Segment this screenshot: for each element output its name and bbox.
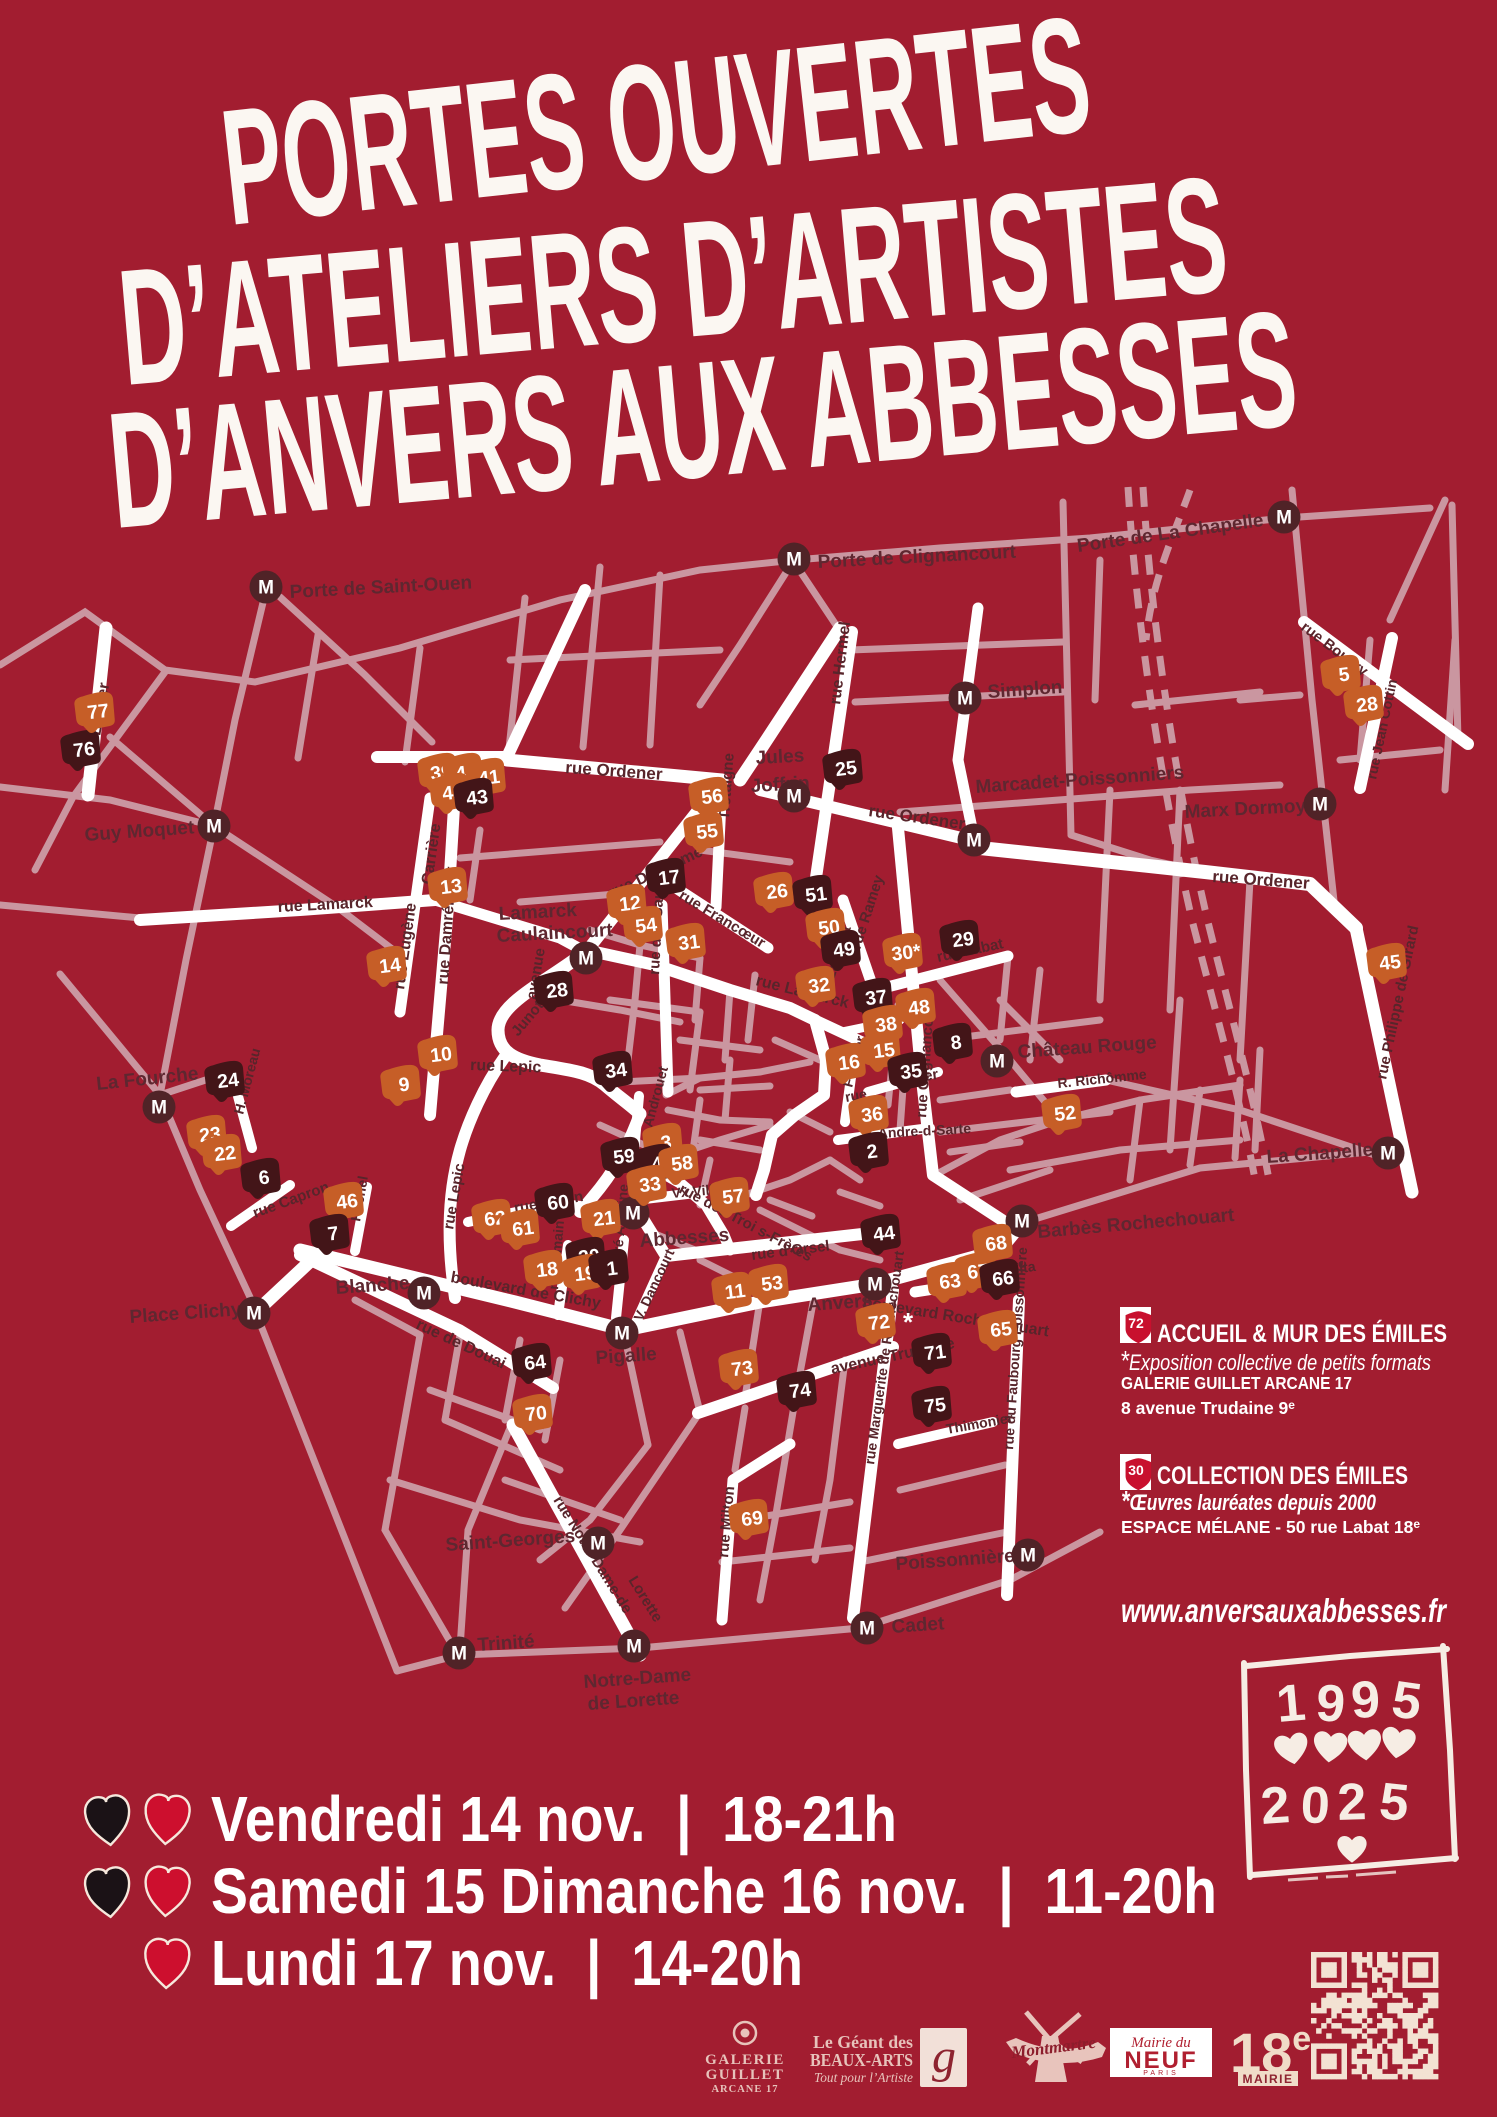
svg-text:8 avenue Trudaine 9e: 8 avenue Trudaine 9e	[1121, 1398, 1295, 1418]
svg-text:49: 49	[832, 938, 856, 962]
svg-text:g: g	[932, 2030, 956, 2083]
svg-text:9: 9	[1314, 1674, 1347, 1734]
svg-text:M: M	[416, 1284, 432, 1305]
svg-text:46: 46	[335, 1190, 359, 1214]
svg-text:Lundi 17 nov. | 14-20h: Lundi 17 nov. | 14-20h	[211, 1927, 803, 2000]
svg-text:13: 13	[439, 875, 463, 899]
svg-text:M: M	[989, 1052, 1005, 1073]
svg-text:55: 55	[695, 820, 719, 844]
svg-text:66: 66	[991, 1267, 1015, 1291]
svg-text:45: 45	[1378, 951, 1402, 975]
svg-text:44: 44	[872, 1222, 896, 1246]
svg-text:72: 72	[1128, 1315, 1144, 1331]
svg-text:M: M	[966, 831, 982, 852]
svg-text:M: M	[206, 817, 222, 838]
svg-text:60: 60	[546, 1191, 570, 1215]
svg-text:M: M	[578, 949, 594, 970]
svg-text:M: M	[258, 578, 274, 599]
svg-text:GUILLET: GUILLET	[706, 2067, 785, 2083]
svg-text:M: M	[626, 1637, 642, 1658]
svg-text:28: 28	[545, 979, 569, 1003]
svg-text:29: 29	[951, 928, 975, 952]
svg-text:54: 54	[634, 914, 658, 938]
svg-text:M: M	[1380, 1144, 1396, 1165]
svg-text:32: 32	[807, 974, 831, 998]
svg-text:63: 63	[938, 1270, 962, 1294]
svg-text:33: 33	[638, 1173, 662, 1197]
svg-text:24: 24	[216, 1069, 240, 1093]
svg-text:M: M	[451, 1644, 467, 1665]
svg-text:GALERIE GUILLET ARCANE 17: GALERIE GUILLET ARCANE 17	[1121, 1373, 1352, 1393]
svg-text:58: 58	[670, 1152, 694, 1176]
svg-text:Jules: Jules	[755, 745, 805, 769]
svg-text:*: *	[903, 1307, 914, 1337]
svg-text:M: M	[1014, 1212, 1030, 1233]
svg-text:9: 9	[1350, 1671, 1382, 1730]
svg-text:75: 75	[923, 1394, 947, 1418]
svg-text:43: 43	[465, 786, 489, 810]
svg-text:56: 56	[700, 785, 724, 809]
svg-text:Lamarck: Lamarck	[498, 900, 578, 925]
svg-text:18: 18	[535, 1258, 559, 1282]
svg-text:M: M	[590, 1534, 606, 1555]
svg-text:rue Lepic: rue Lepic	[470, 1057, 542, 1076]
svg-text:72: 72	[867, 1311, 891, 1335]
svg-text:5: 5	[1377, 1772, 1412, 1833]
svg-text:59: 59	[612, 1145, 636, 1169]
svg-text:PARIS: PARIS	[1143, 2070, 1179, 2077]
svg-text:M: M	[859, 1619, 875, 1640]
svg-text:77: 77	[86, 700, 110, 724]
svg-text:2: 2	[1259, 1776, 1292, 1836]
svg-text:74: 74	[788, 1379, 812, 1403]
svg-text:53: 53	[760, 1272, 784, 1296]
svg-text:M: M	[625, 1204, 641, 1225]
svg-text:69: 69	[740, 1507, 764, 1531]
svg-text:Le Géant des: Le Géant des	[813, 2032, 913, 2052]
svg-text:36: 36	[860, 1103, 884, 1127]
svg-text:Trinité: Trinité	[477, 1631, 535, 1656]
svg-text:*Œuvres lauréates depuis 2000: *Œuvres lauréates depuis 2000	[1121, 1485, 1377, 1516]
svg-text:10: 10	[429, 1043, 453, 1067]
svg-text:51: 51	[804, 883, 828, 907]
svg-text:61: 61	[511, 1217, 535, 1241]
svg-text:34: 34	[604, 1059, 628, 1083]
svg-text:MAIRIE: MAIRIE	[1243, 2072, 1294, 2086]
svg-text:COLLECTION DES ÉMILES: COLLECTION DES ÉMILES	[1157, 1461, 1408, 1490]
svg-text:M: M	[786, 550, 802, 571]
svg-text:73: 73	[730, 1357, 754, 1381]
svg-text:ESPACE MÉLANE - 50 rue Labat 1: ESPACE MÉLANE - 50 rue Labat 18e	[1121, 1516, 1420, 1537]
svg-text:16: 16	[837, 1051, 861, 1075]
svg-text:57: 57	[721, 1185, 745, 1209]
svg-text:M: M	[151, 1098, 167, 1119]
svg-text:31: 31	[677, 931, 701, 955]
svg-text:26: 26	[765, 880, 789, 904]
svg-text:M: M	[957, 689, 973, 710]
svg-text:M: M	[1312, 795, 1328, 816]
svg-text:Tout pour l’Artiste: Tout pour l’Artiste	[814, 2070, 913, 2085]
svg-text:71: 71	[923, 1341, 947, 1365]
svg-text:30*: 30*	[890, 940, 922, 965]
svg-text:Cadet: Cadet	[891, 1613, 946, 1638]
svg-text:28: 28	[1355, 693, 1379, 717]
svg-text:70: 70	[524, 1402, 548, 1426]
svg-text:48: 48	[907, 996, 931, 1020]
svg-text:ACCUEIL & MUR DES ÉMILES: ACCUEIL & MUR DES ÉMILES	[1157, 1319, 1447, 1348]
svg-text:GALERIE: GALERIE	[705, 2052, 785, 2068]
svg-text:M: M	[1020, 1546, 1036, 1567]
svg-text:M: M	[786, 787, 802, 808]
svg-text:76: 76	[72, 738, 96, 762]
svg-text:30: 30	[1128, 1462, 1144, 1478]
svg-text:M: M	[867, 1275, 883, 1296]
svg-text:Samedi 15 Dimanche 16 nov. |: Samedi 15 Dimanche 16 nov. | 11-20h	[211, 1855, 1217, 1928]
svg-text:65: 65	[989, 1318, 1013, 1342]
svg-text:21: 21	[592, 1207, 616, 1231]
svg-text:52: 52	[1053, 1102, 1077, 1126]
svg-text:25: 25	[834, 757, 858, 781]
svg-text:M: M	[246, 1304, 262, 1325]
svg-text:*Exposition collective de peti: *Exposition collective de petits formats	[1120, 1345, 1431, 1376]
svg-text:14: 14	[378, 954, 402, 978]
svg-text:64: 64	[523, 1351, 547, 1375]
svg-text:Vendredi 14 nov. | 18-21h: Vendredi 14 nov. | 18-21h	[211, 1783, 897, 1856]
svg-text:0: 0	[1299, 1776, 1331, 1835]
svg-text:17: 17	[657, 866, 681, 890]
svg-text:www.anversauxabbesses.fr: www.anversauxabbesses.fr	[1121, 1592, 1448, 1629]
svg-text:2: 2	[1336, 1773, 1367, 1832]
svg-text:M: M	[1276, 508, 1292, 529]
svg-text:22: 22	[213, 1142, 237, 1166]
svg-text:ARCANE 17: ARCANE 17	[711, 2084, 778, 2095]
svg-text:BEAUX-ARTS: BEAUX-ARTS	[810, 2050, 913, 2070]
svg-text:M: M	[614, 1324, 630, 1345]
svg-text:1: 1	[1274, 1674, 1308, 1734]
svg-text:11: 11	[724, 1280, 747, 1304]
svg-text:35: 35	[899, 1060, 923, 1084]
